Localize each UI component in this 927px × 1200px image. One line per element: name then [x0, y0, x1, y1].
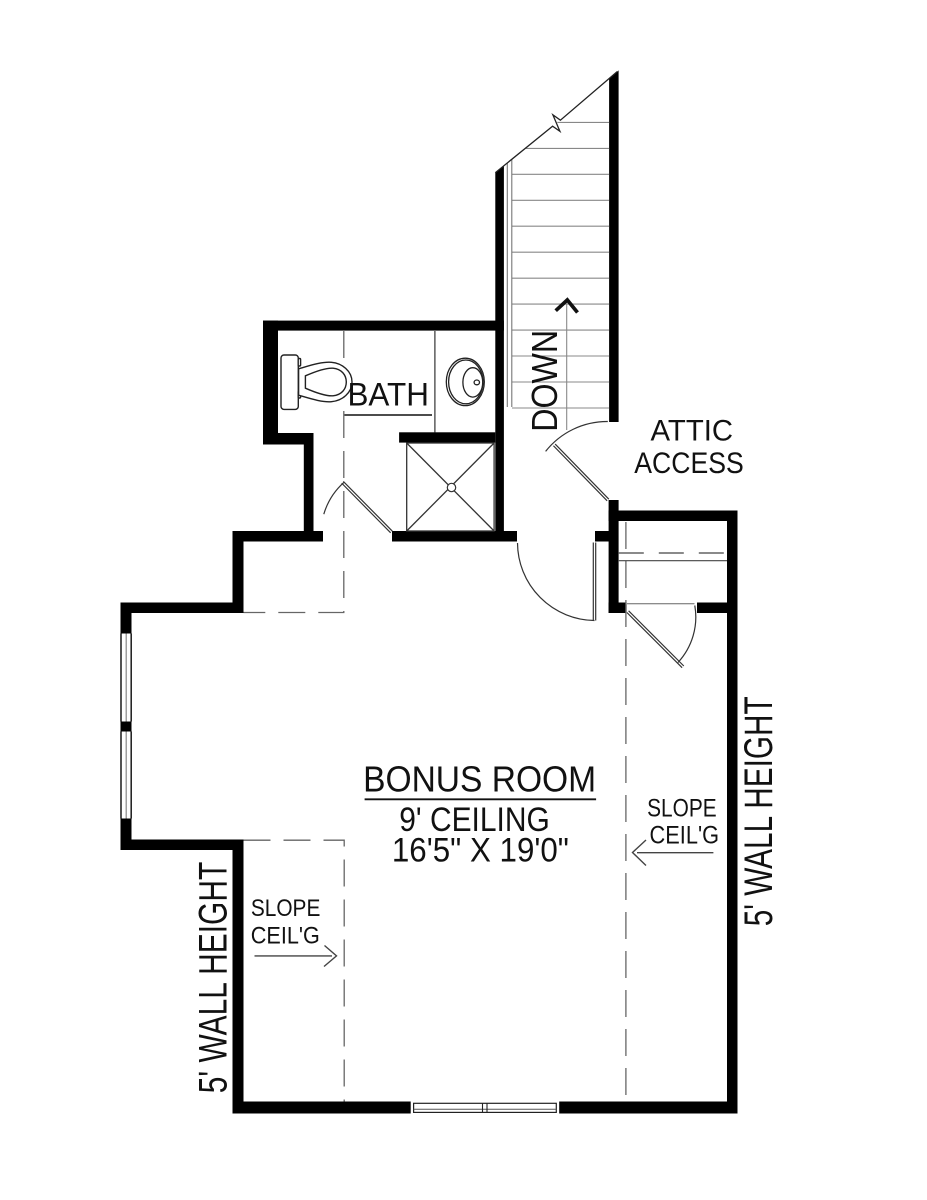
svg-text:SLOPE: SLOPE [647, 795, 717, 823]
svg-text:CEIL'G: CEIL'G [650, 821, 720, 849]
svg-text:BATH: BATH [347, 377, 429, 413]
svg-text:ATTIC: ATTIC [651, 414, 734, 447]
svg-text:5' WALL HEIGHT: 5' WALL HEIGHT [737, 696, 781, 926]
svg-text:16'5" X 19'0": 16'5" X 19'0" [392, 831, 569, 869]
svg-text:CEIL'G: CEIL'G [251, 922, 320, 949]
svg-text:5' WALL HEIGHT: 5' WALL HEIGHT [191, 862, 235, 1094]
svg-text:ACCESS: ACCESS [634, 447, 744, 480]
svg-text:DOWN: DOWN [524, 330, 565, 432]
svg-text:BONUS ROOM: BONUS ROOM [363, 759, 596, 800]
svg-text:SLOPE: SLOPE [251, 895, 321, 922]
